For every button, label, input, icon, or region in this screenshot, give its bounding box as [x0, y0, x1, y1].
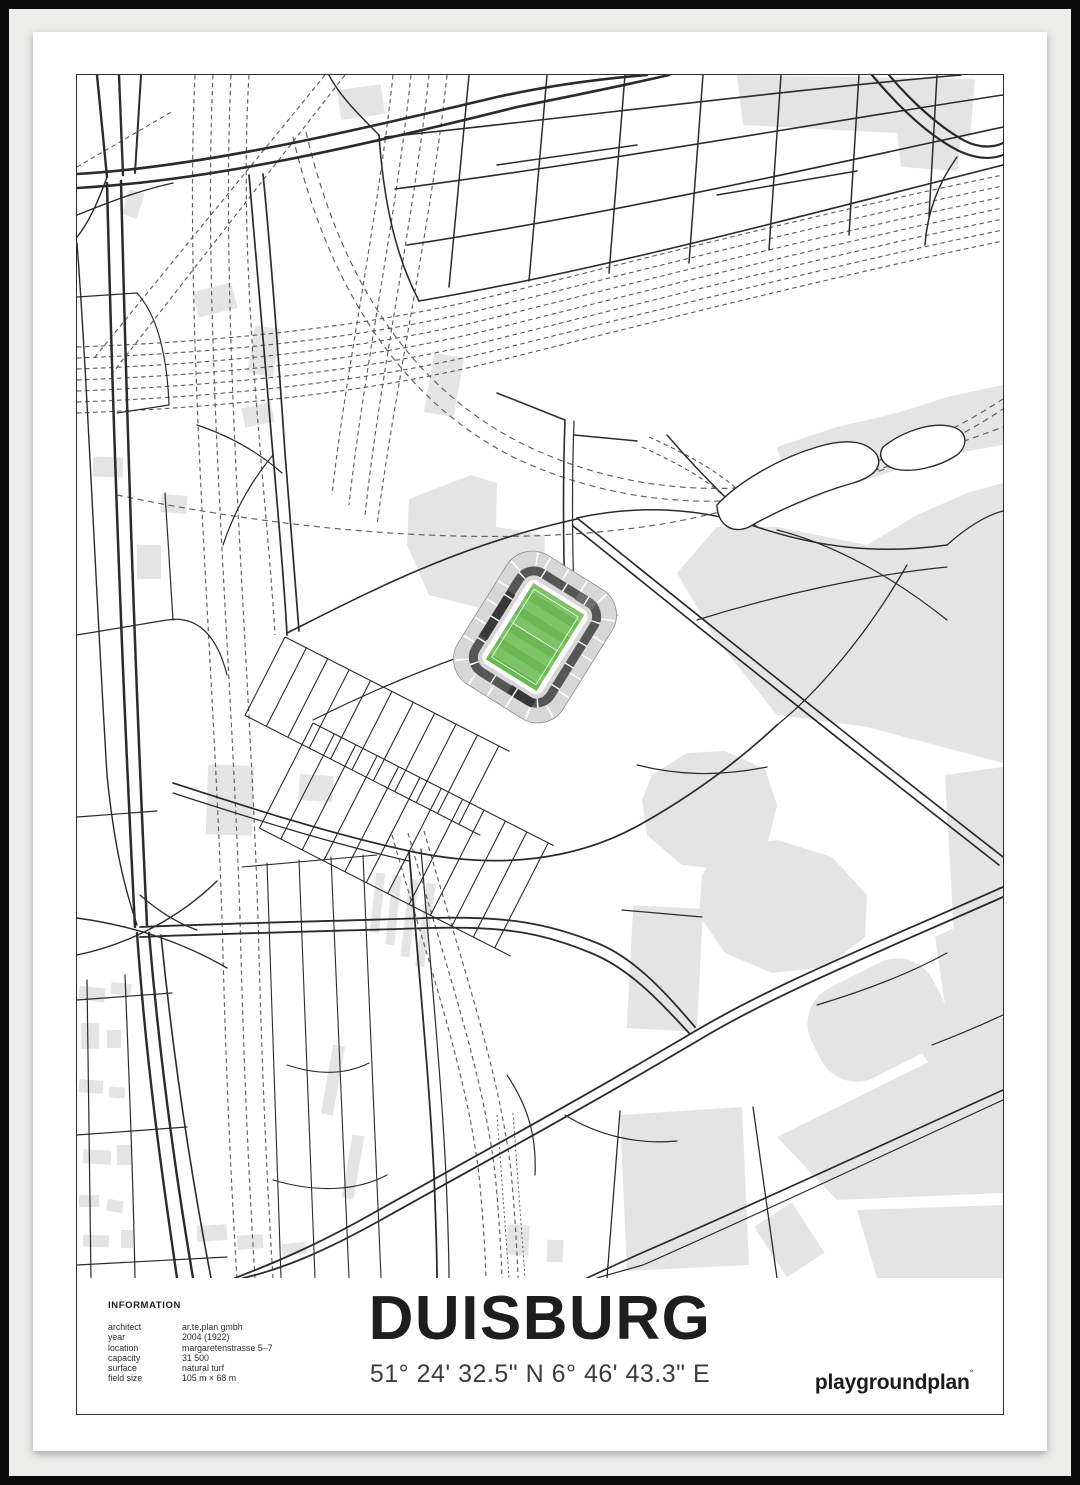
- poster-footer: INFORMATION architect ar.te.plan gmbh ye…: [77, 1278, 1003, 1414]
- brand-text: playgroundplan: [815, 1371, 970, 1394]
- poster-frame: INFORMATION architect ar.te.plan gmbh ye…: [76, 74, 1004, 1415]
- poster: INFORMATION architect ar.te.plan gmbh ye…: [33, 32, 1047, 1451]
- city-map-svg: [77, 75, 1003, 1278]
- poster-title: DUISBURG: [77, 1288, 1003, 1350]
- brand-registered-mark: °: [970, 1368, 973, 1378]
- brand-logo: playgroundplan°: [815, 1368, 973, 1395]
- map-area: [77, 75, 1003, 1278]
